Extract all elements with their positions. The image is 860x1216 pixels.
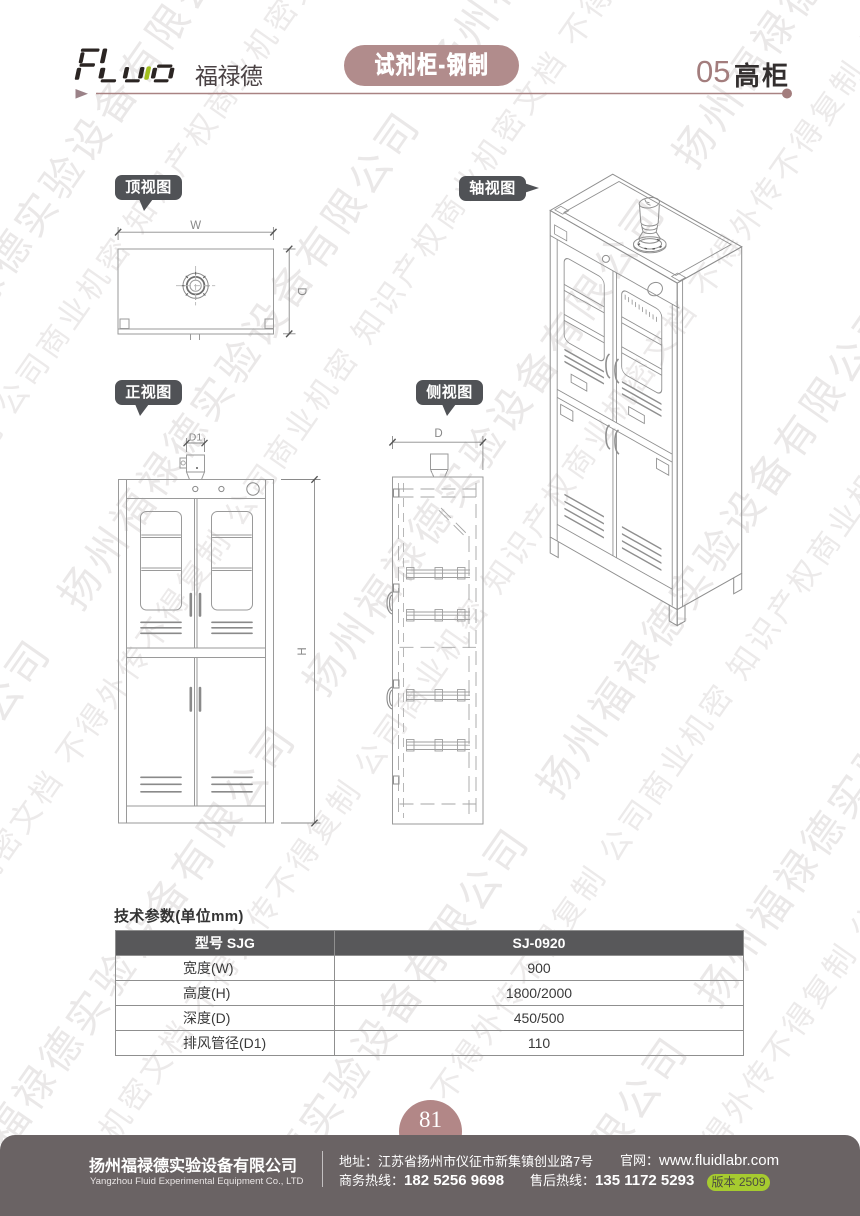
svg-text:D: D: [434, 428, 442, 440]
svg-text:D1: D1: [189, 432, 203, 444]
svg-text:D: D: [295, 287, 307, 295]
svg-text:H: H: [297, 647, 309, 655]
svg-text:W: W: [190, 220, 201, 232]
